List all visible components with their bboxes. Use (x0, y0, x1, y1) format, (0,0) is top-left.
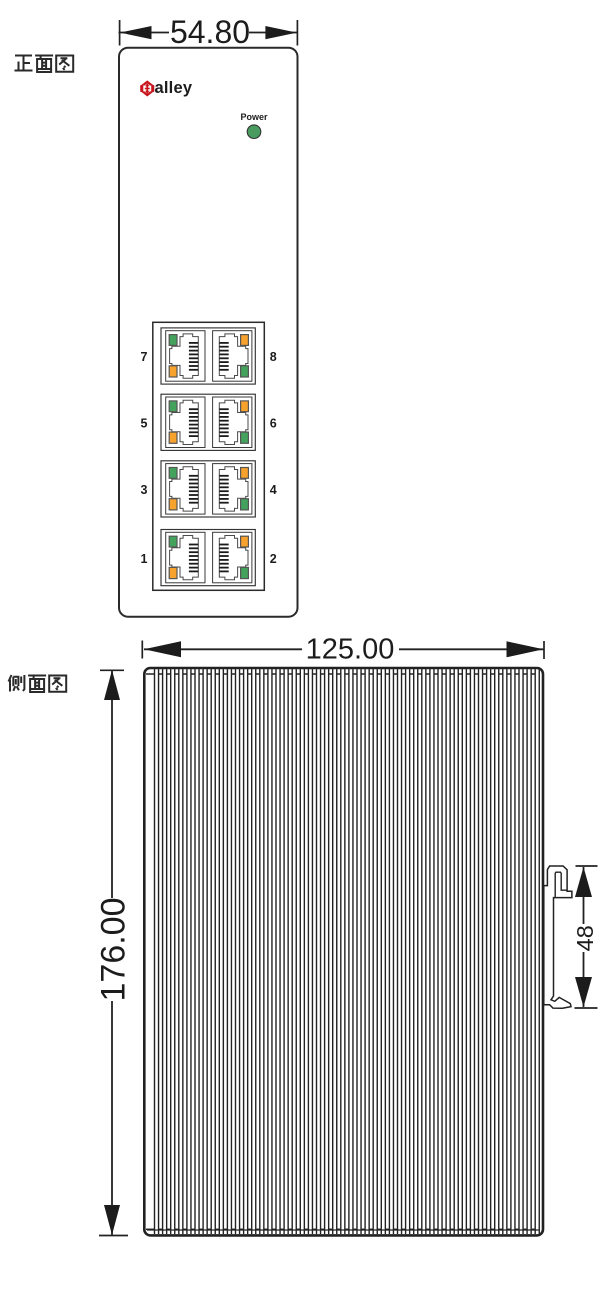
svg-text:7: 7 (141, 350, 148, 364)
svg-text:54.80: 54.80 (170, 14, 250, 50)
svg-text:125.00: 125.00 (306, 634, 395, 666)
svg-text:8: 8 (270, 350, 277, 364)
svg-text:5: 5 (141, 417, 148, 431)
svg-text:176.00: 176.00 (95, 898, 133, 1002)
svg-text:4: 4 (270, 483, 277, 497)
svg-text:Power: Power (240, 112, 268, 122)
svg-text:alley: alley (155, 79, 193, 97)
svg-text:3: 3 (141, 483, 148, 497)
svg-text:48: 48 (572, 925, 598, 951)
svg-text:2: 2 (270, 552, 277, 566)
svg-text:6: 6 (270, 417, 277, 431)
svg-text:1: 1 (141, 552, 148, 566)
